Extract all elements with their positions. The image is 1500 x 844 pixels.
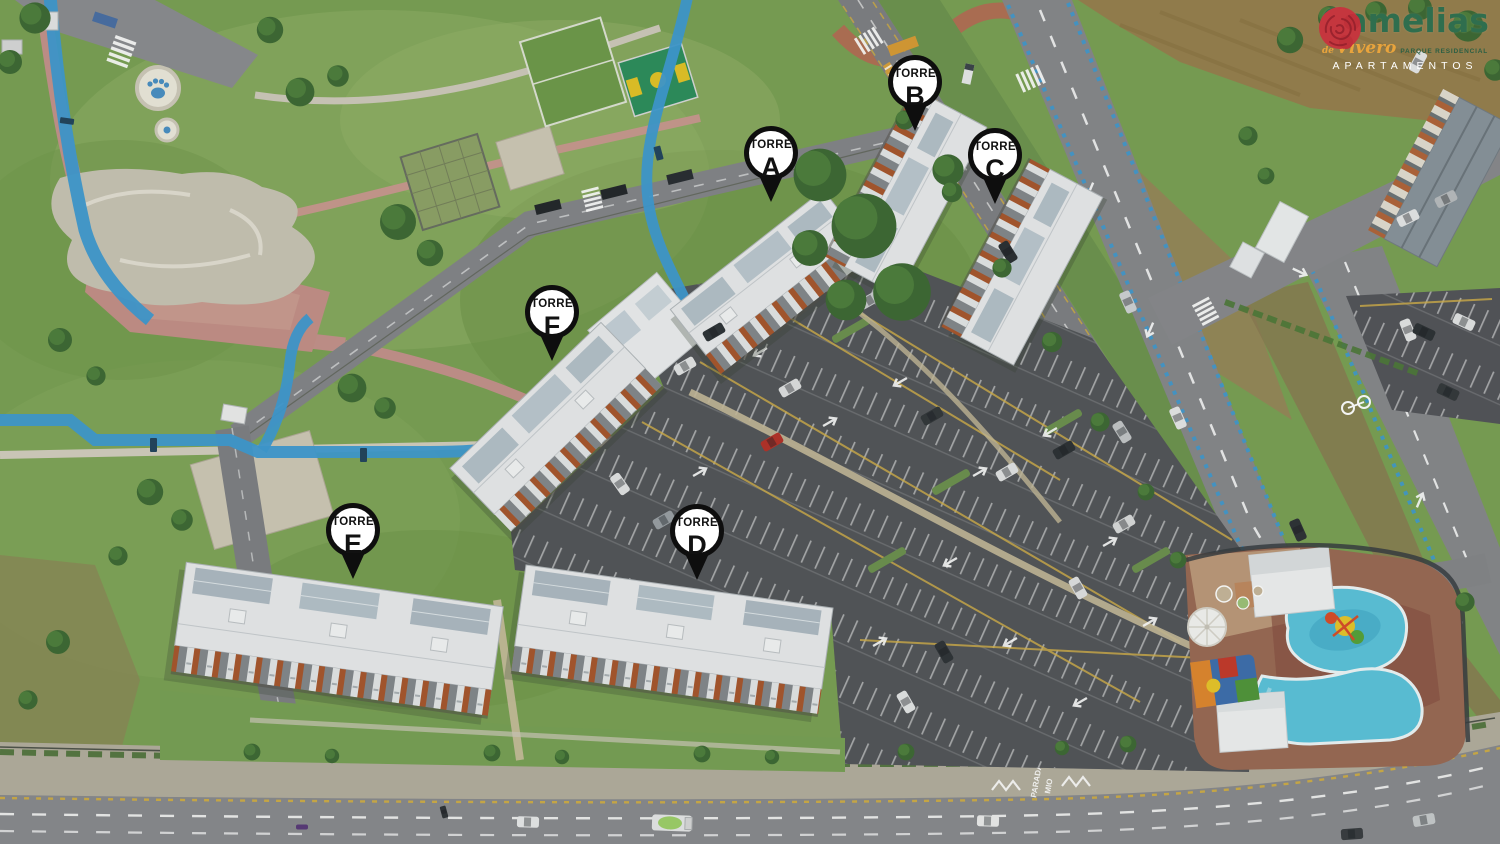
marker-letter: D (687, 530, 707, 560)
camellia-rose-icon (1316, 4, 1364, 52)
marker-title: TORRE (974, 141, 1016, 153)
photo-overlay (0, 0, 1500, 844)
marker-letter: C (985, 154, 1005, 184)
marker-letter: F (544, 311, 561, 341)
aerial-site-map: PARADA MIO (0, 0, 1500, 844)
brand-tagline: PARQUE RESIDENCIAL (1400, 48, 1488, 55)
marker-letter: E (344, 529, 362, 559)
marker-title: TORRE (676, 517, 718, 529)
aerial-photo-canvas: PARADA MIO (0, 0, 1500, 844)
brand-subtitle: APARTAMENTOS (1316, 61, 1494, 72)
marker-letter: B (905, 81, 925, 111)
marker-title: TORRE (332, 516, 374, 528)
marker-title: TORRE (531, 298, 573, 310)
marker-letter: A (761, 152, 781, 182)
marker-title: TORRE (750, 139, 792, 151)
marker-title: TORRE (894, 68, 936, 80)
brand-logo: Camelias deViveroPARQUE RESIDENCIAL APAR… (1316, 4, 1494, 72)
